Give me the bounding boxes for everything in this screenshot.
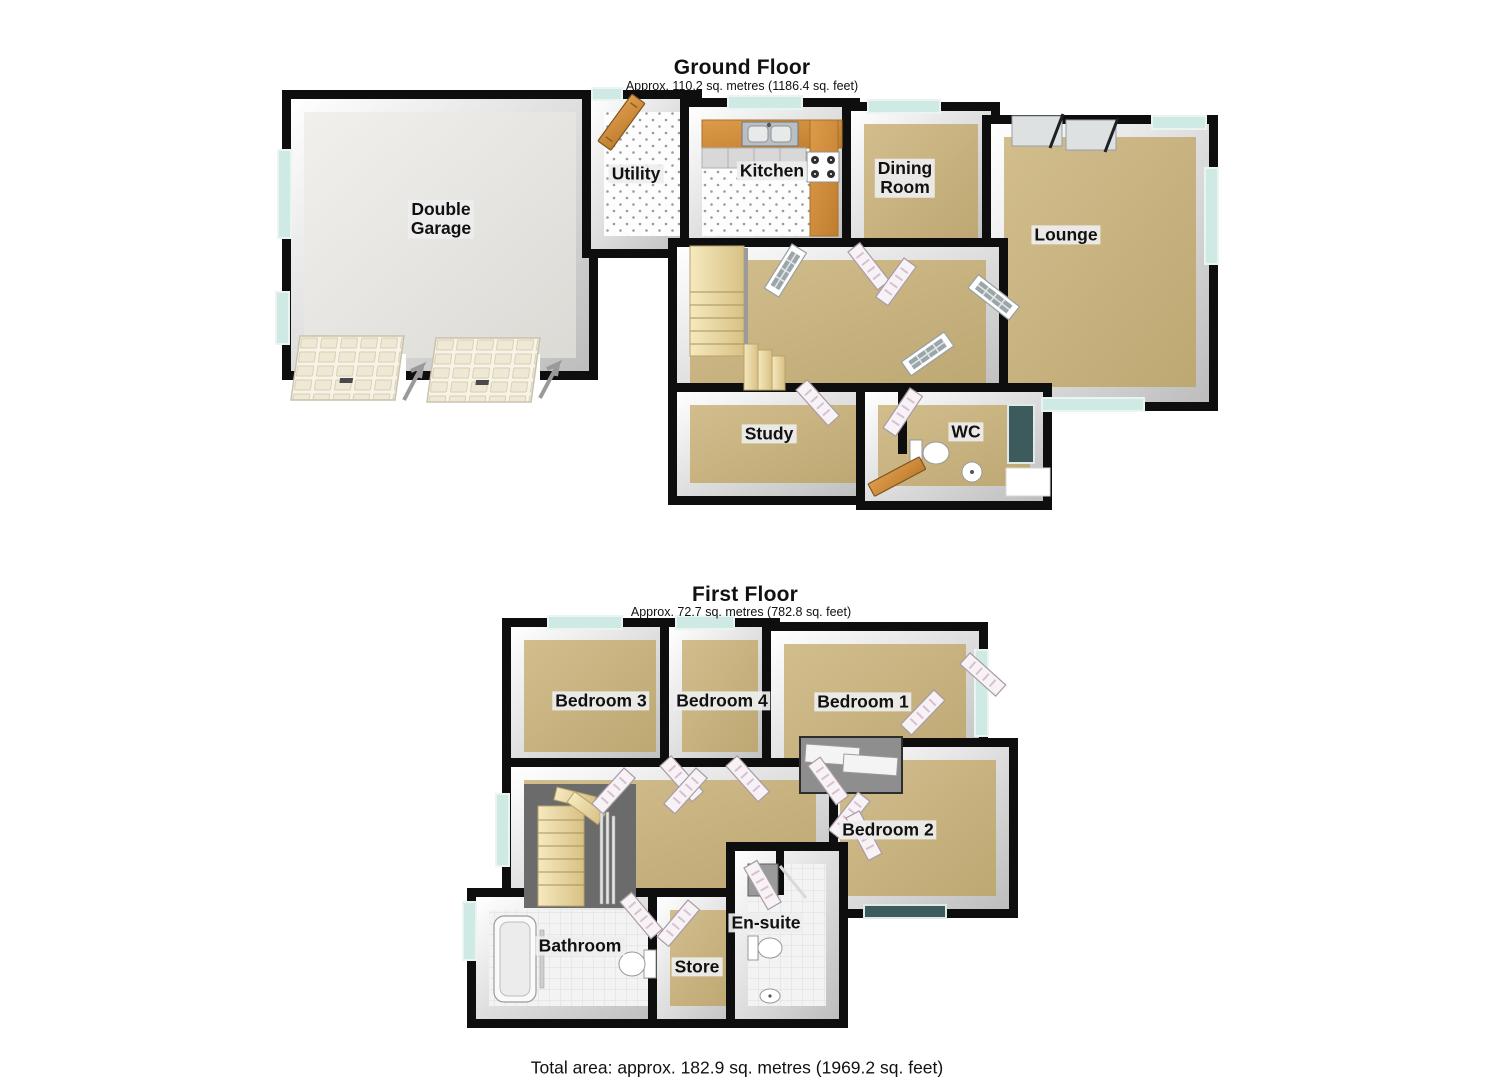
total-area-text: Total area: approx. 182.9 sq. metres (19… — [531, 1058, 943, 1079]
wc-basin — [962, 462, 982, 482]
room-label-en-suite: En-suite — [728, 913, 803, 932]
bedroom2-window — [864, 905, 946, 918]
landing-window — [496, 794, 509, 866]
stair-railing — [744, 248, 748, 344]
room-label-kitchen: Kitchen — [737, 161, 807, 180]
landing-railing — [600, 808, 603, 904]
ensuite-basin — [760, 989, 780, 1003]
first-floor-area: Approx. 72.7 sq. metres (782.8 sq. feet) — [631, 605, 851, 619]
kitchen-sink — [742, 122, 798, 146]
first-floor-stairs — [524, 784, 636, 908]
garage-window — [278, 150, 291, 238]
room-label-store: Store — [672, 957, 723, 976]
garage-window-2 — [276, 292, 289, 344]
utility-window — [592, 88, 622, 100]
room-label-dining-room: Dining Room — [875, 159, 935, 198]
dining-window — [868, 100, 940, 113]
bathroom-toilet — [619, 950, 656, 978]
bedroom3-window — [548, 616, 622, 629]
ground-floor-title: Ground Floor — [674, 56, 811, 80]
room-label-bedroom-3: Bedroom 3 — [552, 691, 649, 710]
room-label-bedroom-2: Bedroom 2 — [839, 820, 936, 839]
bathtub — [494, 916, 544, 1002]
ground-floor-plan — [276, 88, 1218, 510]
room-study — [668, 383, 880, 505]
lounge-window-top — [1152, 116, 1206, 129]
lounge-window-bottom — [1042, 398, 1144, 411]
ground-floor-area: Approx. 110.2 sq. metres (1186.4 sq. fee… — [626, 79, 858, 93]
ensuite-toilet — [748, 936, 782, 960]
room-label-bathroom: Bathroom — [536, 936, 625, 955]
kitchen-window — [728, 96, 802, 109]
entrance-sidelight — [1008, 405, 1034, 463]
room-lounge — [982, 115, 1218, 411]
room-label-double-garage: Double Garage — [408, 200, 474, 239]
room-label-bedroom-1: Bedroom 1 — [814, 692, 911, 711]
lounge-window-right — [1205, 168, 1218, 264]
entrance-porch — [1006, 468, 1050, 496]
room-label-bedroom-4: Bedroom 4 — [673, 691, 770, 710]
room-label-study: Study — [742, 424, 797, 443]
first-floor-title: First Floor — [692, 583, 798, 607]
room-label-wc: WC — [948, 422, 983, 441]
room-en-suite — [726, 842, 848, 1028]
room-label-utility: Utility — [609, 164, 664, 183]
bathroom-window — [463, 902, 476, 960]
floorplan-page: Ground Floor Approx. 110.2 sq. metres (1… — [0, 0, 1485, 1080]
room-label-lounge: Lounge — [1031, 225, 1100, 244]
kitchen-stove — [807, 152, 839, 182]
